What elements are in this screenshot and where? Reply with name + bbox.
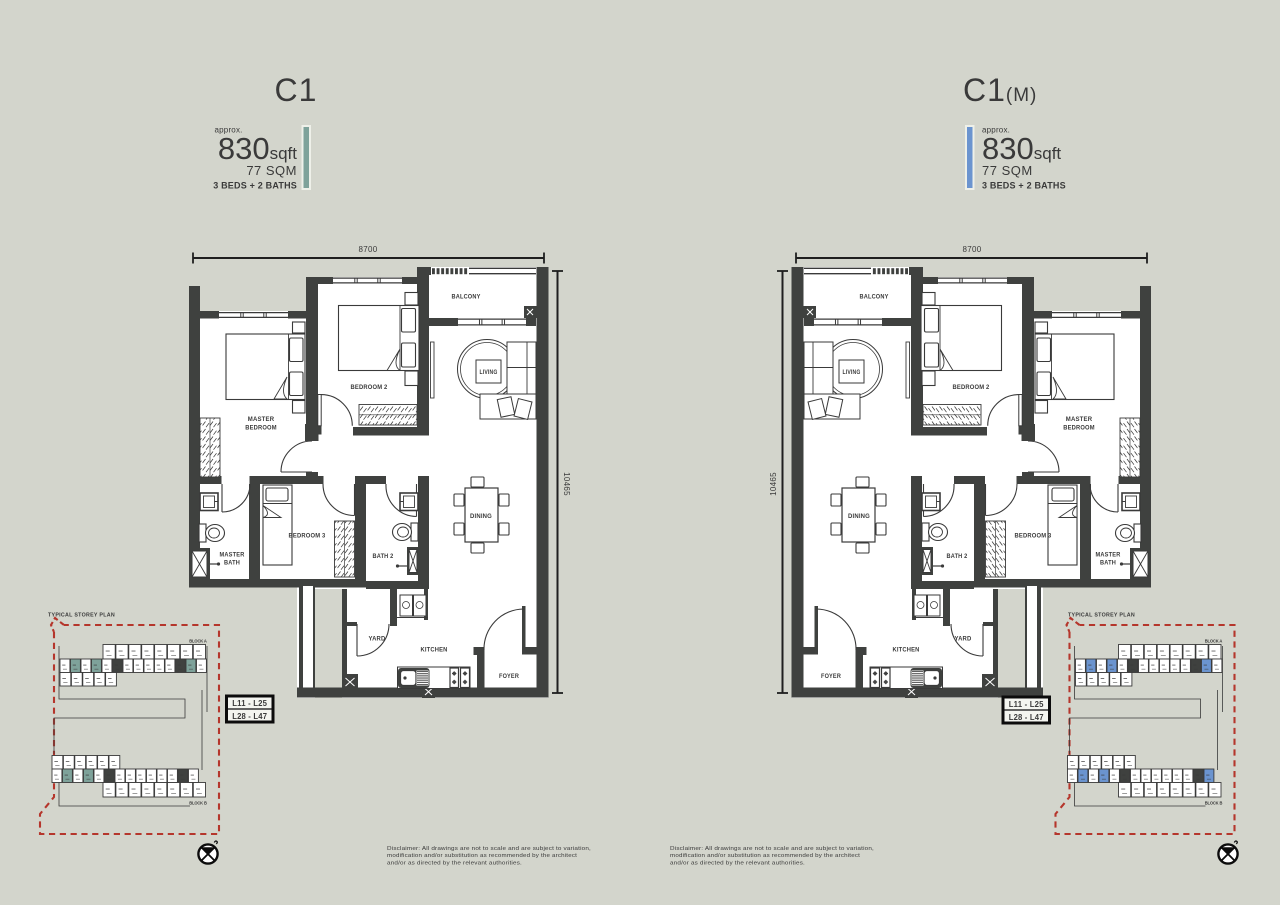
svg-text:MASTER: MASTER: [248, 416, 275, 423]
svg-text:L11 - L25: L11 - L25: [232, 699, 267, 708]
svg-text:BEDROOM: BEDROOM: [245, 425, 277, 432]
svg-text:10465: 10465: [562, 472, 571, 496]
svg-text:10465: 10465: [769, 472, 778, 496]
svg-text:YARD: YARD: [955, 636, 972, 643]
svg-text:77 SQM: 77 SQM: [246, 163, 297, 178]
svg-text:modification and/or substitu: modification and/or substitution as reco…: [387, 853, 578, 859]
svg-text:BEDROOM 2: BEDROOM 2: [351, 384, 388, 391]
svg-text:BATH: BATH: [224, 561, 240, 567]
svg-text:FOYER: FOYER: [499, 673, 519, 680]
svg-text:BEDROOM 2: BEDROOM 2: [953, 384, 990, 391]
svg-text:L28 - L47: L28 - L47: [1009, 713, 1044, 722]
svg-text:BALCONY: BALCONY: [860, 294, 889, 301]
svg-text:DINING: DINING: [470, 513, 492, 520]
svg-text:TYPICAL STOREY PLAN: TYPICAL STOREY PLAN: [1068, 613, 1135, 619]
svg-text:BLOCK B: BLOCK B: [1205, 801, 1223, 806]
svg-text:TYPICAL STOREY PLAN: TYPICAL STOREY PLAN: [48, 613, 115, 619]
svg-text:FOYER: FOYER: [821, 673, 841, 680]
svg-text:MASTER: MASTER: [1096, 553, 1121, 559]
svg-text:BALCONY: BALCONY: [452, 294, 481, 301]
svg-text:BLOCK A: BLOCK A: [1205, 639, 1223, 644]
svg-text:3 BEDS + 2 BATHS: 3 BEDS + 2 BATHS: [213, 181, 297, 191]
svg-text:LIVING: LIVING: [480, 370, 498, 376]
svg-text:BEDROOM 3: BEDROOM 3: [1015, 533, 1052, 540]
svg-text:BATH: BATH: [1100, 561, 1116, 567]
svg-text:77 SQM: 77 SQM: [982, 163, 1033, 178]
svg-text:YARD: YARD: [369, 636, 386, 643]
svg-text:and/or as directed by the: and/or as directed by the relevant autho…: [387, 860, 522, 866]
svg-text:MASTER: MASTER: [1066, 416, 1093, 423]
svg-text:and/or as directed by the: and/or as directed by the relevant autho…: [670, 860, 805, 866]
svg-text:MASTER: MASTER: [220, 553, 245, 559]
svg-text:DINING: DINING: [848, 513, 870, 520]
svg-text:Disclaimer: All drawings ar: Disclaimer: All drawings are not to scal…: [387, 846, 591, 852]
svg-text:C1: C1: [275, 72, 318, 108]
svg-text:8700: 8700: [963, 245, 982, 254]
svg-text:L28 - L47: L28 - L47: [232, 712, 267, 721]
svg-text:modification and/or substitu: modification and/or substitution as reco…: [670, 853, 861, 859]
svg-text:BATH 2: BATH 2: [373, 554, 394, 560]
svg-text:BLOCK B: BLOCK B: [189, 801, 207, 806]
svg-text:8700: 8700: [359, 245, 378, 254]
svg-text:BEDROOM: BEDROOM: [1063, 425, 1095, 432]
svg-text:BATH 2: BATH 2: [947, 554, 968, 560]
svg-text:KITCHEN: KITCHEN: [893, 647, 920, 654]
svg-text:BEDROOM 3: BEDROOM 3: [289, 533, 326, 540]
svg-text:3 BEDS + 2 BATHS: 3 BEDS + 2 BATHS: [982, 181, 1066, 191]
svg-text:L11 - L25: L11 - L25: [1009, 700, 1044, 709]
svg-text:LIVING: LIVING: [843, 370, 861, 376]
svg-text:Disclaimer: All drawings ar: Disclaimer: All drawings are not to scal…: [670, 846, 874, 852]
svg-text:BLOCK A: BLOCK A: [189, 639, 207, 644]
svg-text:KITCHEN: KITCHEN: [421, 647, 448, 654]
